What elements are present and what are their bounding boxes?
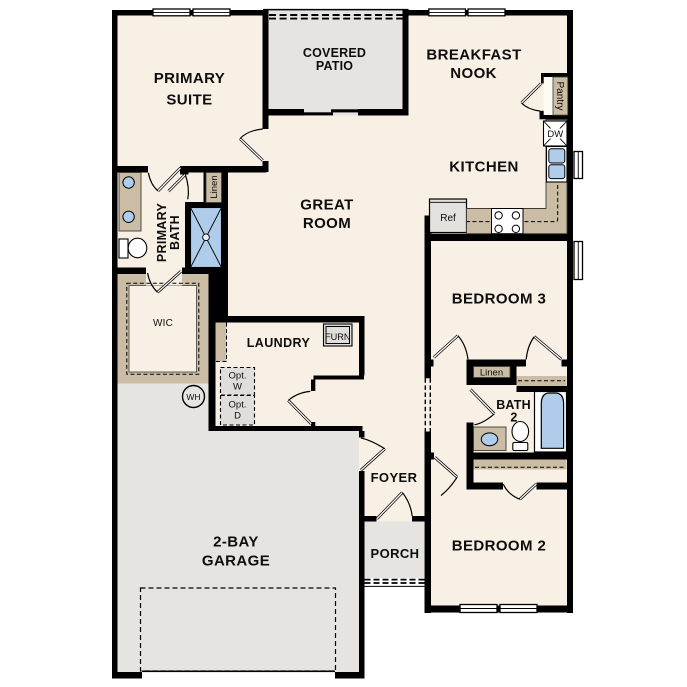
svg-text:COVERED: COVERED xyxy=(303,46,366,60)
svg-text:KITCHEN: KITCHEN xyxy=(449,159,518,176)
svg-text:PRIMARY: PRIMARY xyxy=(155,203,169,263)
svg-text:BREAKFAST: BREAKFAST xyxy=(426,47,521,64)
svg-text:FOYER: FOYER xyxy=(371,470,418,485)
svg-text:GREAT: GREAT xyxy=(300,197,353,214)
svg-text:DW: DW xyxy=(547,129,563,140)
svg-text:Linen: Linen xyxy=(480,368,503,379)
svg-text:LAUNDRY: LAUNDRY xyxy=(247,336,311,350)
svg-text:D: D xyxy=(234,411,241,422)
svg-text:GARAGE: GARAGE xyxy=(202,553,270,570)
svg-text:Linen: Linen xyxy=(209,175,220,198)
svg-text:BATH: BATH xyxy=(168,215,182,250)
svg-text:SUITE: SUITE xyxy=(166,92,212,109)
svg-text:Opt.: Opt. xyxy=(229,371,247,382)
svg-text:Ref: Ref xyxy=(440,213,456,224)
svg-text:BEDROOM 2: BEDROOM 2 xyxy=(452,538,546,555)
svg-text:PORCH: PORCH xyxy=(371,546,420,561)
svg-text:NOOK: NOOK xyxy=(450,65,497,82)
svg-text:ROOM: ROOM xyxy=(303,215,351,232)
svg-text:PATIO: PATIO xyxy=(316,59,353,73)
svg-text:PRIMARY: PRIMARY xyxy=(154,70,225,87)
svg-text:FURN: FURN xyxy=(325,332,351,342)
svg-text:Opt.: Opt. xyxy=(229,400,247,411)
svg-text:Pantry: Pantry xyxy=(554,82,565,111)
svg-text:2: 2 xyxy=(510,411,517,425)
svg-text:BEDROOM 3: BEDROOM 3 xyxy=(452,291,546,308)
svg-text:W: W xyxy=(233,382,242,393)
svg-text:WH: WH xyxy=(186,392,200,402)
svg-text:WIC: WIC xyxy=(153,318,173,329)
svg-text:2-BAY: 2-BAY xyxy=(213,534,259,551)
